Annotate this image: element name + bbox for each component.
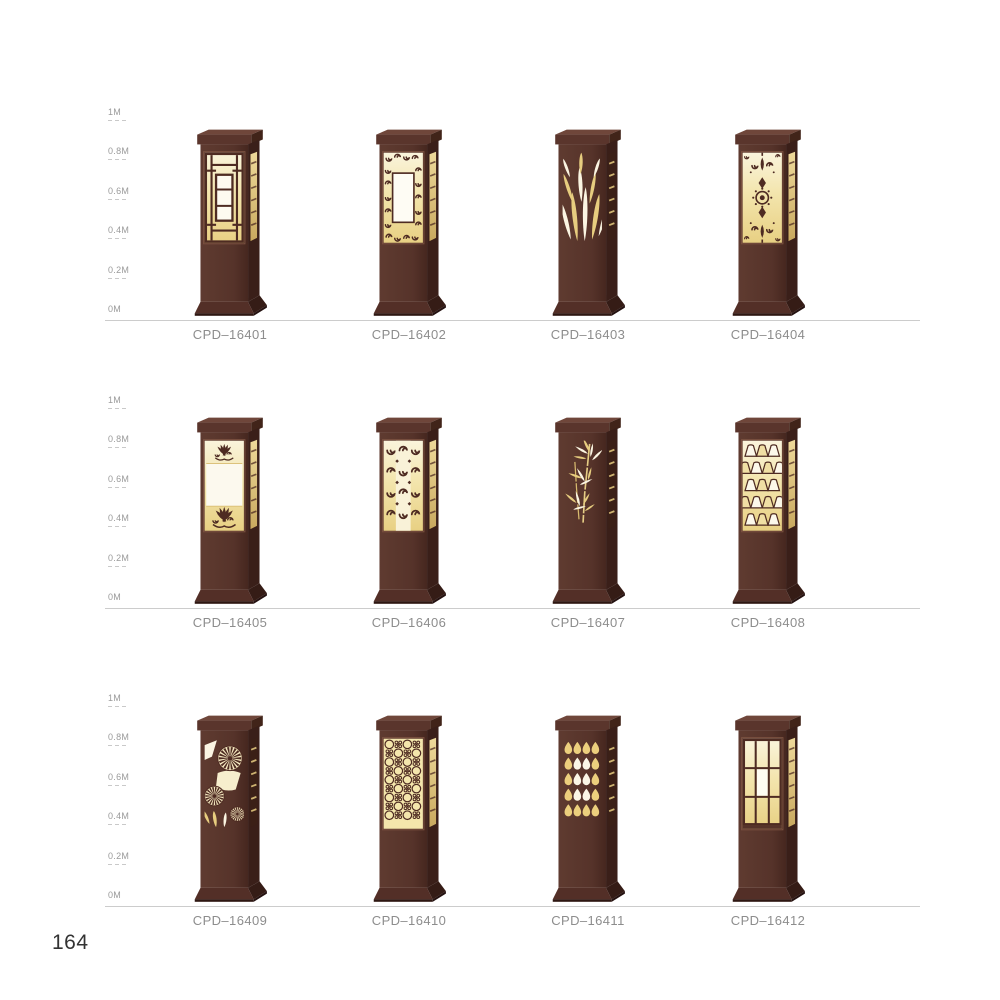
scale-tick: 0.6M [108,187,129,200]
scale-label: 0.8M [108,733,129,742]
scale-label: 1M [108,694,126,703]
product-figure: CPD–16405 [148,411,312,630]
scale-tick-dashes [108,706,126,707]
product-row-3: 1M 0.8M 0.6M 0.4M 0.2M 0M CPD–16409 CPD–… [0,694,1000,944]
scale-label: 0.8M [108,147,129,156]
lamp-illustration [189,123,271,320]
scale-label: 0.6M [108,187,129,196]
scale-tick: 0.4M [108,812,129,825]
scale-label: 0.4M [108,812,129,821]
product-model-label: CPD–16406 [372,615,446,630]
product-figure: CPD–16402 [327,123,491,342]
product-model-label: CPD–16412 [731,913,805,928]
scale-label: 1M [108,108,126,117]
scale-label: 0M [108,891,121,900]
height-scale: 1M 0.8M 0.6M 0.4M 0.2M 0M [108,694,152,906]
height-scale: 1M 0.8M 0.6M 0.4M 0.2M 0M [108,396,152,608]
scale-label: 0.6M [108,475,129,484]
scale-tick-dashes [108,487,129,488]
scale-label: 0.4M [108,514,129,523]
lamp-illustration [547,123,629,320]
product-figure: CPD–16406 [327,411,491,630]
scale-tick-dashes [108,785,129,786]
product-model-label: CPD–16404 [731,327,805,342]
product-model-label: CPD–16403 [551,327,625,342]
scale-label: 0.2M [108,852,129,861]
scale-tick-dashes [108,120,126,121]
scale-label: 0.4M [108,226,129,235]
product-figure: CPD–16404 [686,123,850,342]
product-figure: CPD–16401 [148,123,312,342]
scale-label: 0.2M [108,554,129,563]
scale-tick: 1M [108,108,126,121]
product-model-label: CPD–16409 [193,913,267,928]
scale-tick-dashes [108,199,129,200]
scale-tick: 0.2M [108,266,129,279]
page-number: 164 [52,931,89,955]
product-model-label: CPD–16411 [551,913,624,928]
scale-label: 0.2M [108,266,129,275]
scale-label: 0M [108,593,121,602]
scale-label: 1M [108,396,126,405]
scale-tick: 0.8M [108,147,129,160]
lamp-illustration [368,123,450,320]
scale-tick: 0.6M [108,773,129,786]
catalog-page: 1M 0.8M 0.6M 0.4M 0.2M 0M CPD–16401 CPD–… [0,0,1000,1000]
scale-tick: 0M [108,305,121,314]
lamp-illustration [547,411,629,608]
scale-label: 0.6M [108,773,129,782]
scale-tick-dashes [108,278,129,279]
product-figure: CPD–16403 [506,123,670,342]
product-figure: CPD–16411 [506,709,670,928]
scale-label: 0M [108,305,121,314]
scale-tick: 0.8M [108,435,129,448]
scale-tick-dashes [108,824,129,825]
product-model-label: CPD–16407 [551,615,625,630]
product-figure: CPD–16409 [148,709,312,928]
scale-tick: 0.2M [108,852,129,865]
scale-tick: 0M [108,593,121,602]
scale-tick-dashes [108,447,129,448]
product-figure: CPD–16407 [506,411,670,630]
scale-tick-dashes [108,238,129,239]
scale-tick-dashes [108,526,129,527]
lamp-illustration [727,411,809,608]
scale-tick: 0.8M [108,733,129,746]
scale-tick-dashes [108,566,129,567]
lamp-illustration [547,709,629,906]
product-figure: CPD–16410 [327,709,491,928]
scale-tick-dashes [108,745,129,746]
lamp-illustration [368,709,450,906]
product-model-label: CPD–16408 [731,615,805,630]
product-row-1: 1M 0.8M 0.6M 0.4M 0.2M 0M CPD–16401 CPD–… [0,108,1000,358]
lamp-illustration [189,709,271,906]
scale-tick: 1M [108,694,126,707]
lamp-illustration [189,411,271,608]
scale-tick: 0M [108,891,121,900]
scale-tick: 1M [108,396,126,409]
scale-tick: 0.2M [108,554,129,567]
product-figure: CPD–16412 [686,709,850,928]
product-model-label: CPD–16410 [372,913,446,928]
height-scale: 1M 0.8M 0.6M 0.4M 0.2M 0M [108,108,152,320]
product-model-label: CPD–16401 [193,327,267,342]
product-row-2: 1M 0.8M 0.6M 0.4M 0.2M 0M CPD–16405 CPD–… [0,396,1000,646]
scale-tick-dashes [108,408,126,409]
lamp-illustration [727,123,809,320]
lamp-illustration [727,709,809,906]
product-model-label: CPD–16405 [193,615,267,630]
scale-tick: 0.4M [108,226,129,239]
lamp-illustration [368,411,450,608]
scale-tick: 0.4M [108,514,129,527]
scale-tick: 0.6M [108,475,129,488]
scale-tick-dashes [108,159,129,160]
scale-tick-dashes [108,864,129,865]
scale-label: 0.8M [108,435,129,444]
product-model-label: CPD–16402 [372,327,446,342]
product-figure: CPD–16408 [686,411,850,630]
